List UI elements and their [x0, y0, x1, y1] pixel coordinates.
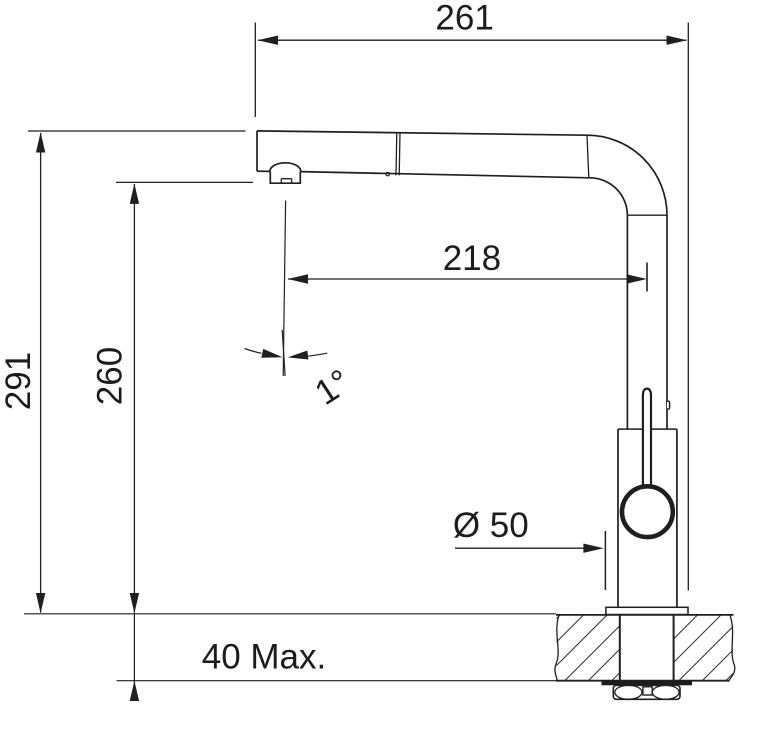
svg-text:40 Max.: 40 Max. — [202, 638, 327, 677]
svg-text:Ø 50: Ø 50 — [453, 506, 529, 545]
svg-text:260: 260 — [91, 347, 130, 405]
svg-text:218: 218 — [443, 239, 501, 278]
svg-text:291: 291 — [0, 352, 38, 410]
svg-text:261: 261 — [435, 0, 493, 37]
